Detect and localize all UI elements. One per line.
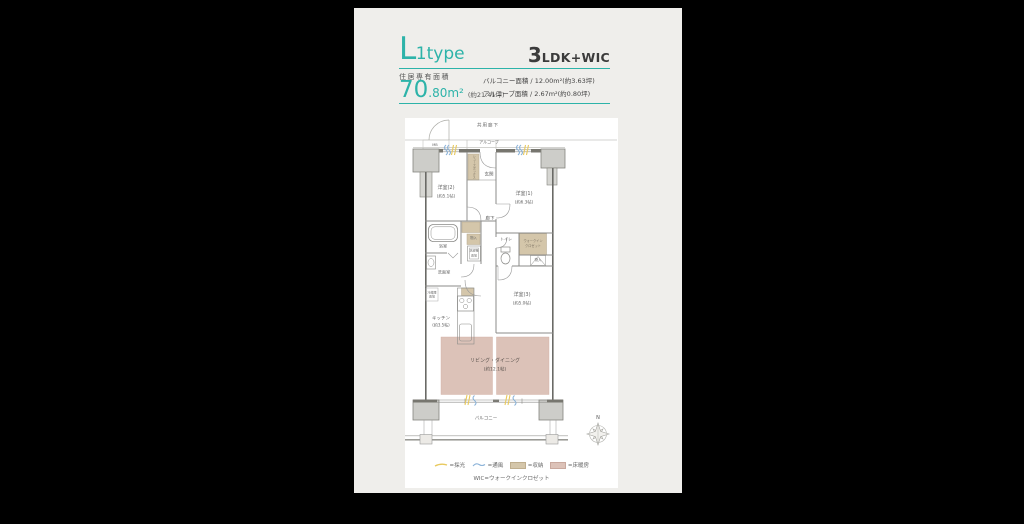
label-living-size: (約12.1帖) (484, 367, 507, 372)
label-room3-size: (約5.0帖) (513, 302, 531, 307)
label-room2-size: (約5.1帖) (437, 195, 455, 200)
label-kitchen: キッチン (432, 316, 450, 321)
content-panel: L1type 3LDK+WIC 住居専有面積 70.80m²(約21.41坪) … (354, 8, 682, 493)
floorplan-drawing (405, 118, 618, 453)
label-storage-a: 物入 (470, 237, 477, 241)
kitchen-icons (458, 288, 475, 344)
legend-wind: =通風 (472, 461, 503, 469)
toilet-icon (501, 247, 510, 264)
label-hall: 廊下 (486, 216, 495, 221)
bottom-windows (437, 399, 547, 404)
wind-swatch-icon (472, 462, 486, 468)
label-room3: 洋室(3) (513, 293, 530, 299)
label-toilet: トイレ (500, 238, 512, 243)
corridor-door-arc (429, 120, 449, 140)
legend-storage-label: =収納 (528, 461, 544, 469)
legend: =採光 =通風 =収納 =床暖房 (405, 461, 618, 469)
entrance-door-arc (480, 152, 496, 168)
daylight-swatch-icon (434, 462, 448, 468)
sub-areas: バルコニー面積 / 12.00m²(約3.63坪) アルコーブ面積 / 2.67… (483, 75, 595, 101)
balcony-area-line: バルコニー面積 / 12.00m²(約3.63坪) (483, 75, 595, 88)
plan-type-suffix: 1type (416, 46, 465, 63)
area-frac: .80m² (428, 87, 464, 99)
layout-title: 3LDK+WIC (528, 45, 610, 65)
legend-daylight: =採光 (434, 461, 465, 469)
layout-suffix: LDK+WIC (542, 52, 610, 65)
plan-type-title: L1type (399, 34, 465, 65)
label-room1-size: (約6.3帖) (515, 201, 533, 206)
legend-storage: =収納 (510, 461, 543, 469)
door-arcs (448, 204, 512, 296)
label-room2: 洋室(2) (437, 186, 454, 192)
label-mb: MB (432, 142, 437, 146)
label-wic-2: クロゼット (525, 245, 541, 249)
legend-heating-label: =床暖房 (568, 461, 589, 469)
alcove-area-line: アルコーブ面積 / 2.67m²(約0.80坪) (483, 88, 595, 101)
plan-type-letter: L (399, 34, 416, 65)
label-bath: 浴室 (439, 245, 447, 250)
bathtub-icon (429, 225, 458, 242)
label-storage-b: 物入 (535, 259, 542, 263)
floorplan-card: 共用廊下 アルコーブ MB 玄関 シューズボックス 洋室(2) (約5.1帖) … (405, 118, 618, 488)
divider-top (399, 68, 610, 69)
compass-north-label: N (596, 416, 600, 422)
layout-number: 3 (528, 45, 542, 65)
label-corridor: 共用廊下 (477, 123, 499, 128)
divider-bottom (399, 103, 610, 104)
label-alcove: アルコーブ (479, 141, 499, 146)
floor-heating-areas (441, 337, 549, 395)
label-entrance: 玄関 (485, 172, 494, 177)
label-laundry-2: 置場 (471, 254, 477, 257)
label-kitchen-size: (約3.5帖) (432, 324, 449, 329)
washbasin-icon (427, 256, 436, 269)
legend-heating: =床暖房 (550, 461, 589, 469)
label-balcony: バルコニー (475, 416, 497, 421)
wic-note: WIC=ウォークインクロゼット (405, 474, 618, 482)
storage-swatch-icon (510, 462, 526, 469)
legend-daylight-label: =採光 (450, 461, 466, 469)
legend-wind-label: =通風 (488, 461, 504, 469)
heating-swatch-icon (550, 462, 566, 469)
balcony-railing (405, 420, 568, 444)
label-living: リビング・ダイニング (470, 359, 520, 365)
compass-icon (587, 423, 609, 445)
label-fridge-2: 置場 (429, 295, 435, 298)
area-int: 70 (399, 79, 428, 102)
label-shoebox: シューズボックス (472, 155, 475, 179)
label-washroom: 洗面室 (438, 271, 451, 276)
label-room1: 洋室(1) (515, 192, 532, 198)
page-background: { "colors": { "background": "#000000", "… (0, 0, 1024, 524)
